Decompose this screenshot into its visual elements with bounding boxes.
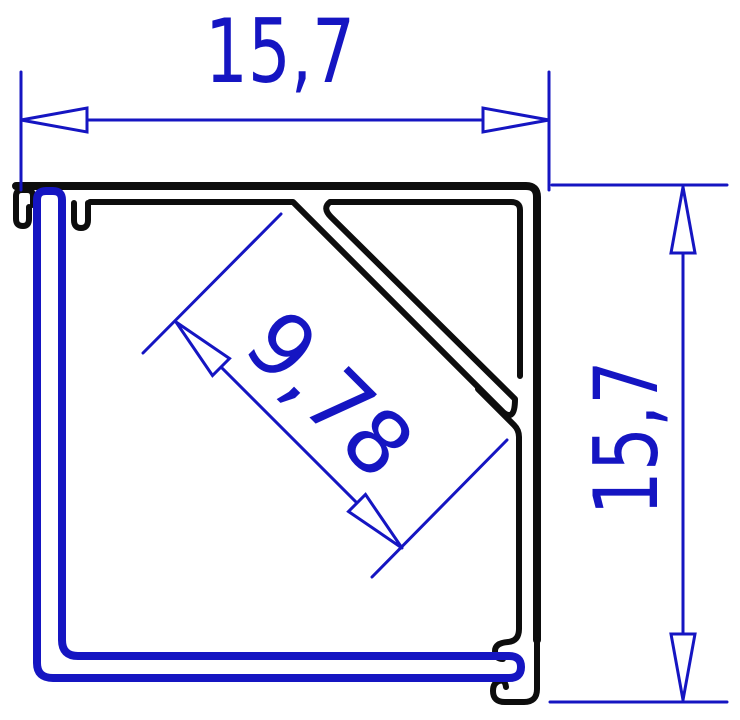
- profile-drawing-svg: 15,7 15,7 9,78: [0, 0, 740, 720]
- profile-black-outline: [16, 186, 537, 702]
- width-arrow-right: [483, 108, 549, 132]
- width-arrow-left: [21, 108, 87, 132]
- height-arrow-bottom: [671, 634, 695, 700]
- cover-l-wall-outline: [37, 191, 521, 678]
- profile-bottom-right-hook: [493, 640, 537, 702]
- channel-arrow-upper: [176, 322, 230, 376]
- channel-arrow-lower: [349, 495, 403, 549]
- profile-top-left-hook: [16, 190, 33, 226]
- profile-right-inner-wall: [478, 389, 519, 659]
- channel-dimension-label: 9,78: [226, 291, 433, 498]
- height-dimension-label: 15,7: [575, 361, 678, 516]
- width-dimension-label: 15,7: [205, 0, 355, 103]
- technical-drawing-canvas: 15,7 15,7 9,78: [0, 0, 740, 720]
- profile-top-rib-hook: [74, 203, 88, 228]
- dimension-labels: 15,7 15,7 9,78: [205, 0, 678, 516]
- height-arrow-top: [671, 187, 695, 253]
- profile-blue-cover-part: [37, 191, 521, 678]
